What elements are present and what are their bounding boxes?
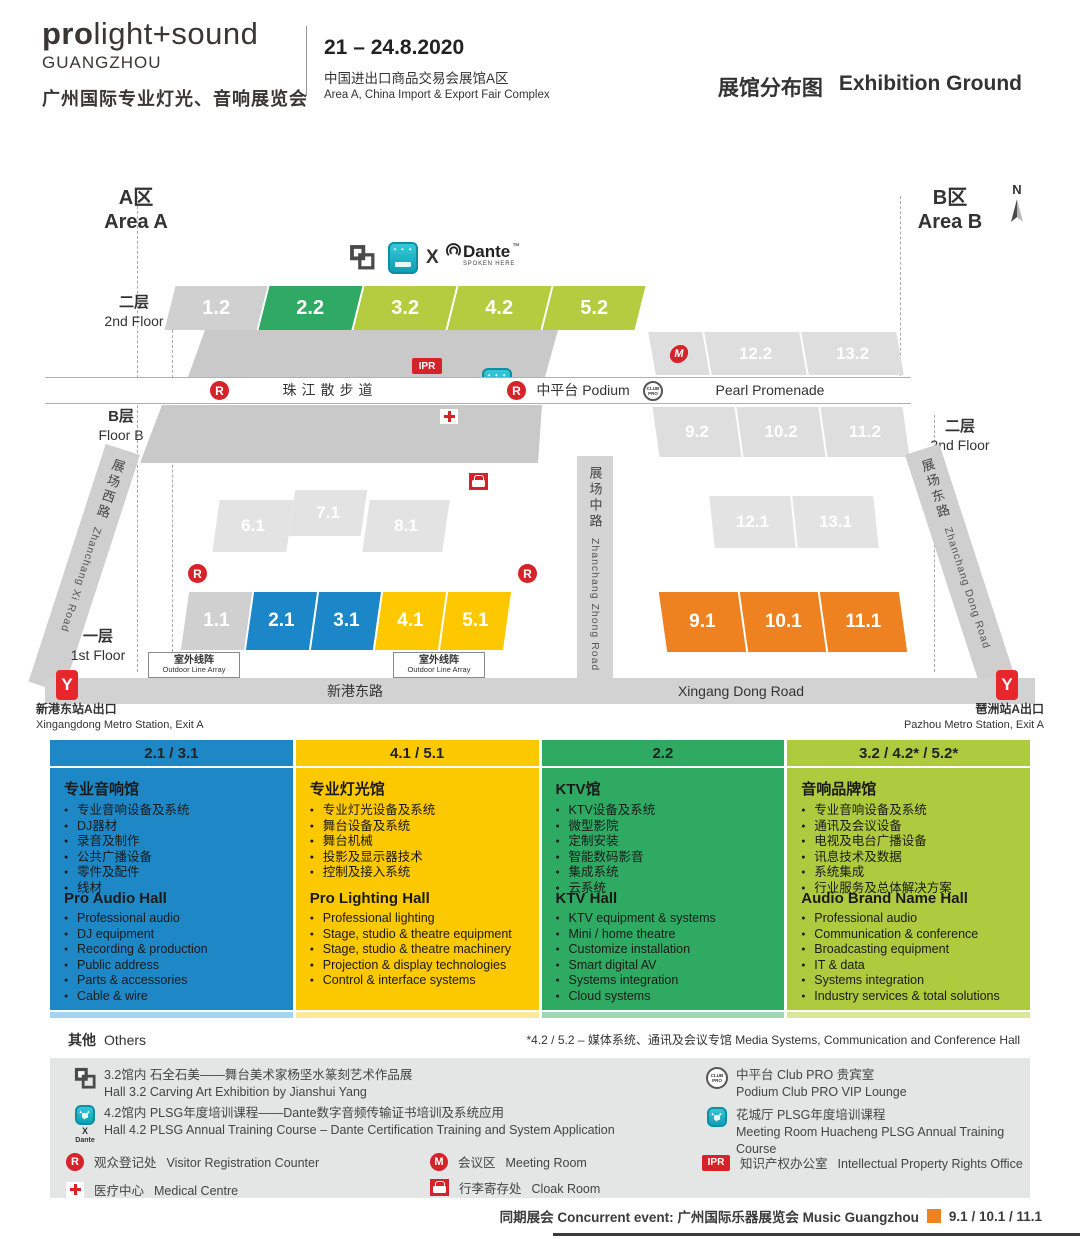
page-title-en: Exhibition Ground (839, 72, 1022, 102)
metro-icon: Y (56, 670, 78, 700)
floor2-label-en: 2nd Floor (96, 313, 172, 331)
compass: N (1004, 182, 1030, 229)
dante-name: Dante (463, 243, 510, 260)
hall-2-1: 2.1 (244, 592, 317, 650)
metro-station-right-cn: 琶洲站A出口 (904, 702, 1044, 718)
area-b-en: Area B (912, 210, 988, 234)
road-zhanchang-zhong-cn: 展场中路 (586, 466, 605, 530)
note-club-pro-lounge: CLUB PRO 中平台 Club PRO 贵宾室 Podium Club PR… (698, 1067, 1028, 1101)
metro-station-left: 新港东站A出口 Xingangdong Metro Station, Exit … (36, 702, 204, 732)
plsg-training-badge-icon (75, 1105, 95, 1125)
facility-ipr-office: IPR 知识产权办公室Intellectual Property Rights … (702, 1153, 1023, 1172)
brand-name: prolight+sound (42, 16, 308, 52)
legend-col-pro-audio: 2.1 / 3.1 专业音响馆 专业音响设备及系统 DJ器材 录音及制作 公共广… (50, 740, 293, 1018)
hall-11-1: 11.1 (818, 592, 907, 652)
cloak-room-marker (469, 473, 488, 490)
legend-body: 专业灯光馆 专业灯光设备及系统 舞台设备及系统 舞台机械 投影及显示器技术 控制… (296, 768, 539, 1010)
floor1-label: 一层 1st Floor (62, 628, 134, 664)
compass-n-label: N (1004, 182, 1030, 197)
carving-art-logo-icon (66, 1067, 104, 1089)
section-title-en: Pro Audio Hall (64, 890, 283, 907)
cn-item-list: KTV设备及系统 微型影院 定制安装 智能数码影音 集成系统 云系统 (556, 803, 771, 896)
carving-art-logo-icon (348, 244, 376, 270)
legend-header: 2.1 / 3.1 (50, 740, 293, 768)
area-b-label: B区 Area B (912, 186, 988, 234)
brand-city: GUANGZHOU (42, 53, 308, 73)
dante-logo: Dante ™ SPOKEN HERE (446, 243, 519, 267)
floor2-hall-row-right: 9.2 10.2 11.2 (652, 407, 909, 457)
floor2-label-cn: 二层 (96, 294, 172, 313)
en-section: Pro Audio Hall Professional audio DJ equ… (64, 890, 283, 1004)
registration-marker: R (210, 381, 229, 400)
club-pro-logo-icon: CLUB PRO (706, 1067, 728, 1089)
hall-9-1: 9.1 (659, 592, 746, 652)
red-cross-icon (444, 411, 455, 422)
floor1-hall-row: 1.1 2.1 3.1 4.1 5.1 (181, 592, 511, 650)
meeting-room-marker: M (430, 1153, 448, 1171)
metro-station-right-en: Pazhou Metro Station, Exit A (904, 718, 1044, 732)
medical-centre-marker (440, 409, 458, 424)
medical-centre-marker (66, 1182, 84, 1198)
hall-7-1: 7.1 (289, 490, 367, 536)
x-collab-label: X (82, 1127, 88, 1136)
area-b-cn: B区 (912, 186, 988, 210)
ipr-office-marker: IPR (412, 358, 442, 374)
floorb-structure (140, 405, 542, 463)
area-a-en: Area A (98, 210, 174, 234)
podium-label: 中平台 Podium (513, 378, 653, 403)
others-label: 其他Others (68, 1026, 146, 1055)
road-zhanchang-dong-cn: 展场东路 (916, 456, 954, 523)
hall-3-2: 3.2 (351, 286, 456, 330)
road-zhanchang-dong: 展场东路 Zhanchang Dong Road (905, 444, 1016, 693)
cloak-room-marker (430, 1179, 449, 1196)
cn-item-list: 专业音响设备及系统 DJ器材 录音及制作 公共广播设备 零件及配件 线材 (64, 803, 279, 896)
metro-station-left-en: Xingangdong Metro Station, Exit A (36, 718, 204, 732)
legend-col-audio-brand: 3.2 / 4.2* / 5.2* 音响品牌馆 专业音响设备及系统 通讯及会议设… (787, 740, 1030, 1018)
note-carving-exhibition: 3.2馆内 石全石美——舞台美术家杨坚水篆刻艺术作品展 Hall 3.2 Car… (66, 1067, 626, 1101)
en-section: Audio Brand Name Hall Professional audio… (801, 890, 1020, 1004)
dante-mini-logo: Dante (75, 1137, 94, 1144)
metro-station-right: 琶洲站A出口 Pazhou Metro Station, Exit A (904, 702, 1044, 732)
section-title-cn: 专业音响馆 (64, 778, 279, 799)
en-section: Pro Lighting Hall Professional lighting … (310, 890, 529, 989)
concurrent-event-footer: 同期展会 Concurrent event: 广州国际乐器展览会 Music G… (500, 1206, 1042, 1226)
legend-strip (542, 1010, 785, 1018)
legend-body: KTV馆 KTV设备及系统 微型影院 定制安装 智能数码影音 集成系统 云系统 … (542, 768, 785, 1010)
brand-name-bold: pro (42, 16, 93, 51)
orange-halls-swatch (927, 1209, 941, 1223)
registration-marker: R (188, 564, 207, 583)
floor2-hall-row: 1.2 2.2 3.2 4.2 5.2 (165, 286, 646, 330)
en-item-list: Professional audio DJ equipment Recordin… (64, 911, 283, 1004)
venue-cn: 中国进出口商品交易会展馆A区 (324, 67, 550, 87)
meeting-room-marker: M (668, 345, 689, 363)
note-line-en: Podium Club PRO VIP Lounge (736, 1085, 907, 1099)
event-dates: 21 – 24.8.2020 (324, 36, 550, 60)
dante-arc-icon (446, 243, 461, 258)
dashed-boundary-line (900, 196, 901, 376)
note-line-cn: 4.2馆内 PLSG年度培训课程——Dante数字音频传输证书培训及系统应用 (104, 1106, 504, 1120)
hall-12-2: 12.2 (702, 332, 807, 375)
legend-header: 4.1 / 5.1 (296, 740, 539, 768)
hall-13-1: 13.1 (790, 496, 878, 548)
hall-10-2: 10.2 (734, 407, 825, 457)
area-a-label: A区 Area A (98, 186, 174, 234)
road-zhanchang-xi-en: Zhanchang Xi Road (58, 526, 103, 634)
legend-col-pro-lighting: 4.1 / 5.1 专业灯光馆 专业灯光设备及系统 舞台设备及系统 舞台机械 投… (296, 740, 539, 1018)
hall-5-1: 5.1 (438, 592, 511, 650)
plsg-x-dante-icon: X Dante (66, 1105, 104, 1144)
hall-4-1: 4.1 (373, 592, 446, 650)
note-line-en: Hall 3.2 Carving Art Exhibition by Jians… (104, 1085, 367, 1099)
hall-4-2: 4.2 (446, 286, 551, 330)
section-title-cn: KTV馆 (556, 778, 771, 799)
ipr-office-marker: IPR (702, 1155, 730, 1171)
area-a-cn: A区 (98, 186, 174, 210)
legend-header: 2.2 (542, 740, 785, 768)
mid-right-hall-row: 12.1 13.1 (709, 496, 878, 548)
road-xingang-dong-cn: 新港东路 (280, 678, 430, 704)
hall-1-2: 1.2 (165, 286, 268, 330)
facility-registration: R 观众登记处Visitor Registration Counter (66, 1152, 319, 1171)
hall-13-2: 13.2 (799, 332, 904, 375)
podium-upper-right-halls: M 12.2 13.2 (648, 332, 904, 375)
legend-strip (296, 1010, 539, 1018)
orange-halls-text: 9.1 / 10.1 / 11.1 (949, 1209, 1042, 1224)
red-cross-icon (70, 1184, 81, 1195)
section-title-en: Audio Brand Name Hall (801, 890, 1020, 907)
section-title-cn: 专业灯光馆 (310, 778, 525, 799)
footnote-4-2-5-2: *4.2 / 5.2 – 媒体系统、通讯及会议专馆 Media Systems,… (526, 1026, 1020, 1054)
note-line-cn: 中平台 Club PRO 贵宾室 (736, 1068, 874, 1082)
en-section: KTV Hall KTV equipment & systems Mini / … (556, 890, 775, 1004)
hall-11-2: 11.2 (818, 407, 909, 457)
floorb-label: B层 Floor B (86, 408, 156, 444)
en-item-list: Professional audio Communication & confe… (801, 911, 1020, 1004)
brand-name-light: light+sound (93, 16, 258, 51)
en-item-list: KTV equipment & systems Mini / home thea… (556, 911, 775, 1004)
hall-1-1: 1.1 (181, 592, 252, 650)
section-title-en: KTV Hall (556, 890, 775, 907)
legend-strip (50, 1010, 293, 1018)
note-huacheng-training: 花城厅 PLSG年度培训课程 Meeting Room Huacheng PLS… (698, 1107, 1028, 1158)
brand-cn-name: 广州国际专业灯光、音响展览会 (42, 85, 308, 111)
hall-legend-table: 2.1 / 3.1 专业音响馆 专业音响设备及系统 DJ器材 录音及制作 公共广… (50, 740, 1030, 1018)
hall-6-1: 6.1 (212, 500, 293, 552)
floor1-label-cn: 一层 (62, 628, 134, 647)
outdoor-line-array-box: 室外线阵 Outdoor Line Array (148, 652, 240, 678)
header-divider (306, 26, 307, 96)
floor1-label-en: 1st Floor (62, 647, 134, 665)
compass-needle-icon (1009, 198, 1025, 224)
concurrent-event-text: 同期展会 Concurrent event: 广州国际乐器展览会 Music G… (500, 1206, 919, 1226)
facility-cloak-room: 行李寄存处Cloak Room (430, 1178, 600, 1197)
floor2-label: 二层 2nd Floor (96, 294, 172, 330)
road-zhanchang-xi-cn: 展场西路 (91, 456, 129, 523)
floor2-right-label-cn: 二层 (925, 418, 995, 437)
brand-logo: prolight+sound GUANGZHOU 广州国际专业灯光、音响展览会 (42, 16, 308, 111)
registration-marker: R (66, 1153, 84, 1171)
hall-10-1: 10.1 (737, 592, 826, 652)
floorb-label-cn: B层 (86, 408, 156, 427)
cn-item-list: 专业音响设备及系统 通讯及会议设备 电视及电台广播设备 讯息技术及数据 系统集成… (801, 803, 1016, 896)
road-zhanchang-zhong-en: Zhanchang Zhong Road (589, 538, 601, 671)
page-title: 展馆分布图 Exhibition Ground (718, 72, 1022, 102)
legend-body: 音响品牌馆 专业音响设备及系统 通讯及会议设备 电视及电台广播设备 讯息技术及数… (787, 768, 1030, 1010)
legend-header: 3.2 / 4.2* / 5.2* (787, 740, 1030, 768)
registration-marker: R (518, 564, 537, 583)
hall-3-1: 3.1 (309, 592, 382, 650)
notes-panel: 3.2馆内 石全石美——舞台美术家杨坚水篆刻艺术作品展 Hall 3.2 Car… (50, 1058, 1030, 1198)
pearl-promenade-band: R 珠江散步道 R 中平台 Podium CLUB PRO Pearl Prom… (45, 377, 911, 404)
road-xingang-dong-en: Xingang Dong Road (561, 678, 921, 704)
road-xingang-dong: 新港东路 Xingang Dong Road (45, 678, 1035, 704)
bottom-rule (553, 1233, 1080, 1236)
hall-12-1: 12.1 (709, 496, 795, 548)
en-item-list: Professional lighting Stage, studio & th… (310, 911, 529, 989)
cn-item-list: 专业灯光设备及系统 舞台设备及系统 舞台机械 投影及显示器技术 控制及接入系统 (310, 803, 525, 881)
note-line-en: Meeting Room Huacheng PLSG Annual Traini… (736, 1125, 1004, 1156)
facility-meeting-room: M 会议区Meeting Room (430, 1152, 587, 1171)
road-zhanchang-zhong: 展场中路 Zhanchang Zhong Road (577, 456, 613, 704)
legend-body: 专业音响馆 专业音响设备及系统 DJ器材 录音及制作 公共广播设备 零件及配件 … (50, 768, 293, 1010)
legend-col-ktv: 2.2 KTV馆 KTV设备及系统 微型影院 定制安装 智能数码影音 集成系统 … (542, 740, 785, 1018)
legend-strip (787, 1010, 1030, 1018)
metro-icon: Y (996, 670, 1018, 700)
plsg-training-badge-icon (388, 242, 418, 274)
dante-tm: ™ (512, 243, 519, 250)
promenade-en: Pearl Promenade (635, 378, 905, 403)
meeting-room-cell: M (648, 332, 710, 375)
hall-2-2: 2.2 (257, 286, 362, 330)
page-title-cn: 展馆分布图 (718, 72, 823, 102)
floor1-hall-row-right: 9.1 10.1 11.1 (659, 592, 907, 652)
hall-5-2: 5.2 (540, 286, 645, 330)
exhibition-ground-map-page: prolight+sound GUANGZHOU 广州国际专业灯光、音响展览会 … (0, 0, 1080, 1239)
hall-9-2: 9.2 (652, 407, 741, 457)
venue-en: Area A, China Import & Export Fair Compl… (324, 89, 550, 101)
note-line-en: Hall 4.2 PLSG Annual Training Course – D… (104, 1123, 615, 1137)
section-title-cn: 音响品牌馆 (801, 778, 1016, 799)
floorb-label-en: Floor B (86, 427, 156, 445)
note-plsg-dante-training: X Dante 4.2馆内 PLSG年度培训课程——Dante数字音频传输证书培… (66, 1105, 666, 1144)
note-line-cn: 3.2馆内 石全石美——舞台美术家杨坚水篆刻艺术作品展 (104, 1068, 412, 1082)
others-row: 其他Others *4.2 / 5.2 – 媒体系统、通讯及会议专馆 Media… (50, 1026, 1030, 1054)
metro-station-left-cn: 新港东站A出口 (36, 702, 204, 718)
x-collab-label: X (426, 247, 439, 269)
road-zhanchang-dong-en: Zhanchang Dong Road (942, 526, 993, 651)
hall-8-1: 8.1 (362, 500, 449, 552)
section-title-en: Pro Lighting Hall (310, 890, 529, 907)
promenade-cn: 珠江散步道 (235, 378, 425, 403)
event-info: 21 – 24.8.2020 中国进出口商品交易会展馆A区 Area A, Ch… (324, 36, 550, 101)
plsg-training-badge-icon (707, 1107, 727, 1127)
facility-medical-centre: 医疗中心Medical Centre (66, 1180, 238, 1199)
note-line-cn: 花城厅 PLSG年度培训课程 (736, 1108, 885, 1122)
dante-spoken-here: SPOKEN HERE (463, 261, 519, 267)
outdoor-line-array-box: 室外线阵 Outdoor Line Array (393, 652, 485, 678)
